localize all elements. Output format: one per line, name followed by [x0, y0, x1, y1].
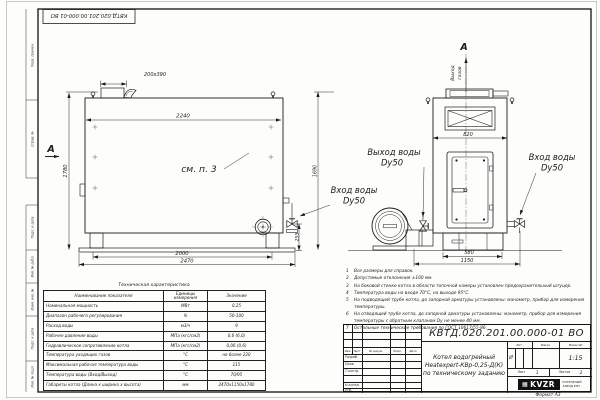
spec-header-units: Единицы измерения — [164, 291, 208, 302]
doc-number-box: КВТД.020.201.00.000-01 ВО — [43, 10, 135, 24]
water-inlet-right-dn: Dy50 — [541, 163, 563, 173]
sheets-cell: Листов 2 — [549, 368, 592, 376]
spec-header-row: Наименование показателя Единицы измерени… — [44, 291, 266, 302]
stamp-podp-data-2: Подп. и дата — [31, 328, 35, 350]
product-line-3: по техническому заданию — [423, 371, 505, 379]
sheet-label: Лист — [517, 370, 525, 374]
dim-height: 1780 — [63, 164, 69, 178]
water-outlet-dn: Dy50 — [381, 158, 403, 168]
spec-name: Температура воды (Вход/Выход) — [44, 370, 164, 380]
role-utv: Утв. — [345, 388, 362, 392]
kvzr-logo-text: KVZR — [530, 380, 555, 389]
dim-base: 2000 — [175, 251, 189, 257]
spec-table: Техническая характеристика Наименование … — [43, 283, 265, 391]
drawing-sheet: Перв. примен. Справ. № Подп. и дата Инв.… — [0, 0, 600, 400]
product-line-1: Котел водогрейный — [433, 355, 495, 363]
water-inlet-left-dn: Dy50 — [343, 196, 365, 206]
note-item: На боковой стенке котла в области топочн… — [345, 284, 589, 291]
format-note: Формат А3 — [505, 393, 591, 398]
spec-header-value: Значение — [208, 291, 266, 302]
rev-header-doc: № докум. — [362, 347, 390, 354]
water-inlet-right-label: Вход воды — [529, 152, 576, 162]
spec-name: Расход воды — [44, 322, 164, 332]
sheets-value: 2 — [580, 370, 583, 375]
spec-value: не более 220 — [208, 351, 266, 361]
spec-units: м3/ч — [164, 322, 208, 332]
sheet-cell: Лист 1 — [507, 368, 549, 376]
gas-outlet-word1: Выход — [450, 65, 456, 80]
dim-front-width: 820 — [463, 132, 473, 138]
rev-header-sign: Подп. — [390, 347, 405, 354]
note-item: На подводящей трубе котла, до запорной а… — [345, 298, 589, 311]
spec-value: 0,25 — [208, 302, 266, 312]
dim-front-height: 1690 — [312, 165, 318, 177]
logo-cell: ▦ KVZR КОТЕЛЬНЫЙ ЗАВОД РЭП — [507, 376, 592, 393]
section-mark-a-front: А — [459, 42, 467, 53]
water-outlet-label: Выход воды — [367, 147, 421, 157]
water-labels: Выход воды Dy50 Вход воды Dy50 Вход воды… — [331, 147, 576, 206]
kvzr-logo: ▦ KVZR — [518, 379, 560, 390]
note-item: Все размеры для справок. — [345, 269, 589, 276]
spec-name: Температура уходящих газов — [44, 351, 164, 361]
rev-header-izm: Изм. — [344, 347, 352, 354]
spec-units: МВт — [164, 302, 208, 312]
spec-row: Максимальная рабочая температура воды°С1… — [44, 361, 266, 371]
logo-caption-line2: ЗАВОД РЭП — [563, 384, 580, 388]
rev-header-date: Дата — [405, 347, 421, 354]
spec-value: 9 — [208, 322, 266, 332]
dim-front-base: 580 — [464, 250, 474, 256]
spec-name: Гидравлическое сопротивление котла — [44, 341, 164, 351]
lit-header: Лит. — [507, 341, 532, 348]
see-note-label: см. п. 3 — [181, 164, 217, 175]
spec-units: МПа (кгс/см2) — [164, 331, 208, 341]
side-view-dims — [45, 81, 302, 268]
spec-value: 50-100 — [208, 312, 266, 322]
spec-row: Рабочее давление водыМПа (кгс/см2)0,6 (6… — [44, 331, 266, 341]
margin-stamp-labels: Перв. примен. Справ. № Подп. и дата Инв.… — [31, 43, 35, 387]
spec-name: Габариты котла (Длина х ширина х высота) — [44, 380, 164, 390]
scale-header: Масштаб — [559, 341, 592, 348]
dim-duct: 200х390 — [144, 72, 166, 78]
role-razrab: Разраб. — [345, 355, 362, 359]
scale-value: 1:15 — [559, 348, 592, 368]
spec-units: мм — [164, 380, 208, 390]
spec-units: °С — [164, 351, 208, 361]
spec-row: Диапазон рабочего регулирования%50-100 — [44, 312, 266, 322]
product-line-2: Heatexpert-КВр-0,25-Д(К) — [425, 363, 503, 371]
water-inlet-left-label: Вход воды — [331, 185, 378, 195]
spec-table-title: Техническая характеристика — [43, 283, 265, 288]
side-view-texts: 200х390 2240 1780 2000 2470 255 А см. п.… — [46, 72, 300, 265]
spec-row: Температура уходящих газов°Сне более 220 — [44, 351, 266, 361]
rev-header-list: Лист — [352, 347, 362, 354]
stamp-inv-dubl: Инв. № дубл. — [31, 256, 35, 278]
mass-header: Масса — [532, 341, 559, 348]
spec-name: Номинальная мощность — [44, 302, 164, 312]
dim-pipe-height: 255 — [294, 233, 300, 242]
spec-row: Расход водым3/ч9 — [44, 322, 266, 332]
role-tkontr: Т.контр. — [345, 369, 362, 373]
doc-number-rotated: КВТД.020.201.00.000-01 ВО — [51, 12, 128, 18]
spec-value: 0,06 (0,6) — [208, 341, 266, 351]
spec-units: % — [164, 312, 208, 322]
kvzr-logo-icon: ▦ — [522, 382, 528, 388]
front-view-dims — [300, 58, 536, 267]
note-item: Допустимые отклонения ±100 мм. — [345, 276, 589, 283]
spec-row: Гидравлическое сопротивление котлаМПа (к… — [44, 341, 266, 351]
title-doc-number: КВТД.020.201.00.000-01 ВО — [421, 325, 592, 341]
spec-value: 2470х1150х1780 — [208, 380, 266, 390]
dim-front-overall: 1150 — [461, 258, 474, 264]
spec-value: 0,6 (6,0) — [208, 331, 266, 341]
spec-row: Номинальная мощностьМВт0,25 — [44, 302, 266, 312]
spec-name: Диапазон рабочего регулирования — [44, 312, 164, 322]
title-product-name: Котел водогрейный Heatexpert-КВр-0,25-Д(… — [422, 343, 506, 391]
gas-outlet-word2: газов — [458, 66, 463, 79]
stamp-inv-podl: Инв. № подл. — [31, 366, 35, 388]
role-prov: Пров. — [345, 362, 362, 366]
spec-value: 115 — [208, 361, 266, 371]
lit-value: И — [507, 348, 515, 368]
stamp-vzam-inv: Взам. инв. № — [31, 288, 35, 310]
title-block: КВТД.020.201.00.000-01 ВО Котел водогрей… — [343, 324, 591, 392]
section-mark-a-side: А — [46, 144, 54, 155]
spec-name: Рабочее давление воды — [44, 331, 164, 341]
note-item: Температура воды на входе 70°С, на выход… — [345, 291, 589, 298]
dim-width-top: 2240 — [176, 114, 190, 120]
logo-caption: КОТЕЛЬНЫЙ ЗАВОД РЭП — [563, 381, 582, 388]
stamp-perv-primen: Перв. примен. — [31, 43, 35, 67]
spec-units: °С — [164, 361, 208, 371]
stamp-sprav-no: Справ. № — [31, 131, 35, 147]
spec-header-name: Наименование показателя — [44, 291, 164, 302]
sheets-label: Листов — [559, 370, 571, 374]
spec-row: Габариты котла (Длина х ширина х высота)… — [44, 380, 266, 390]
spec-units: МПа (кгс/см2) — [164, 341, 208, 351]
spec-units: °С — [164, 370, 208, 380]
stamp-podp-data-1: Подп. и дата — [31, 217, 35, 239]
role-nkontr: Н.контр. — [345, 383, 362, 387]
spec-name: Максимальная рабочая температура воды — [44, 361, 164, 371]
spec-value: 70/95 — [208, 370, 266, 380]
sheet-value: 1 — [536, 370, 539, 375]
spec-row: Температура воды (Вход/Выход)°С70/95 — [44, 370, 266, 380]
dim-length: 2470 — [180, 259, 194, 265]
